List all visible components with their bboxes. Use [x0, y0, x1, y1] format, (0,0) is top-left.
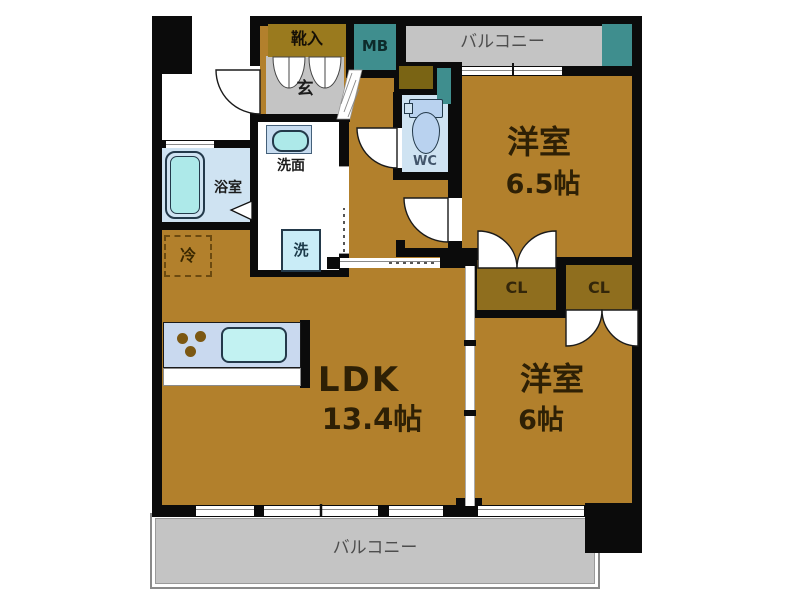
- wall: [327, 257, 340, 269]
- partition-joint: [464, 410, 476, 416]
- closet-1: CL: [477, 265, 556, 310]
- kitchen-front: [163, 368, 301, 386]
- wall: [632, 16, 642, 516]
- washing-machine: 洗: [281, 229, 321, 272]
- label-western2: 洋室: [492, 363, 612, 395]
- closet-1-label: CL: [506, 280, 528, 296]
- wall: [152, 16, 162, 516]
- label-balcony-top: バルコニー: [420, 34, 585, 51]
- floor-plan: CL CL 洗 冷: [0, 0, 800, 600]
- partition-joint: [464, 340, 476, 346]
- label-ldk: LDK: [300, 363, 418, 397]
- wall: [566, 257, 642, 265]
- washroom-door-track: [343, 208, 345, 252]
- front-door-opening: [250, 66, 260, 108]
- washer-label: 洗: [293, 243, 308, 258]
- ldk-western2-partition: [465, 266, 475, 506]
- wall: [346, 16, 354, 78]
- storage-box: [399, 66, 433, 89]
- burner-2: [195, 331, 206, 342]
- closet-2: CL: [566, 265, 632, 310]
- label-balcony-bottom: バルコニー: [280, 540, 470, 557]
- wash-basin: [266, 125, 312, 154]
- hall-ldk-door-track: [389, 262, 437, 264]
- wall: [152, 222, 258, 230]
- window-western2-balcony: [478, 506, 584, 516]
- window-ldk-balcony-1: [196, 506, 254, 516]
- label-wc: WC: [402, 155, 448, 168]
- kitchen-sink: [221, 327, 287, 363]
- kitchen-counter: [163, 322, 301, 368]
- label-bathroom: 浴室: [200, 181, 256, 195]
- label-genkan: 玄: [266, 81, 344, 98]
- closet-2-label: CL: [588, 280, 610, 296]
- label-western2-area: 6帖: [486, 407, 596, 434]
- burner-3: [185, 346, 196, 357]
- window-ldk-balcony-2: [264, 506, 378, 516]
- refrigerator-label: 冷: [180, 248, 196, 264]
- refrigerator-space: 冷: [164, 235, 212, 277]
- label-ldk-area: 13.4帖: [296, 405, 448, 434]
- wall: [585, 503, 642, 553]
- label-western1: 洋室: [478, 126, 600, 158]
- toilet-handle: [404, 103, 413, 114]
- wall: [393, 92, 402, 128]
- wall: [556, 257, 566, 318]
- wall: [393, 172, 448, 180]
- pipe-space-top-right: [602, 24, 632, 66]
- label-shoe-cabinet: 靴入: [268, 31, 346, 47]
- label-meter-box: MB: [354, 39, 396, 54]
- window-bathroom: [166, 141, 214, 148]
- label-western1-area: 6.5帖: [478, 171, 608, 198]
- wall: [250, 114, 350, 122]
- wc-door-opening: [393, 128, 402, 168]
- window-ldk-balcony-3: [389, 506, 443, 516]
- label-washroom: 洗面: [258, 159, 324, 173]
- burner-1: [177, 333, 188, 344]
- bathtub: [165, 151, 205, 219]
- wall: [396, 248, 448, 257]
- window-western1-balcony: [462, 67, 562, 75]
- wall: [466, 310, 566, 318]
- wall: [250, 16, 260, 68]
- western1-door-opening: [448, 198, 462, 241]
- wall: [339, 122, 349, 166]
